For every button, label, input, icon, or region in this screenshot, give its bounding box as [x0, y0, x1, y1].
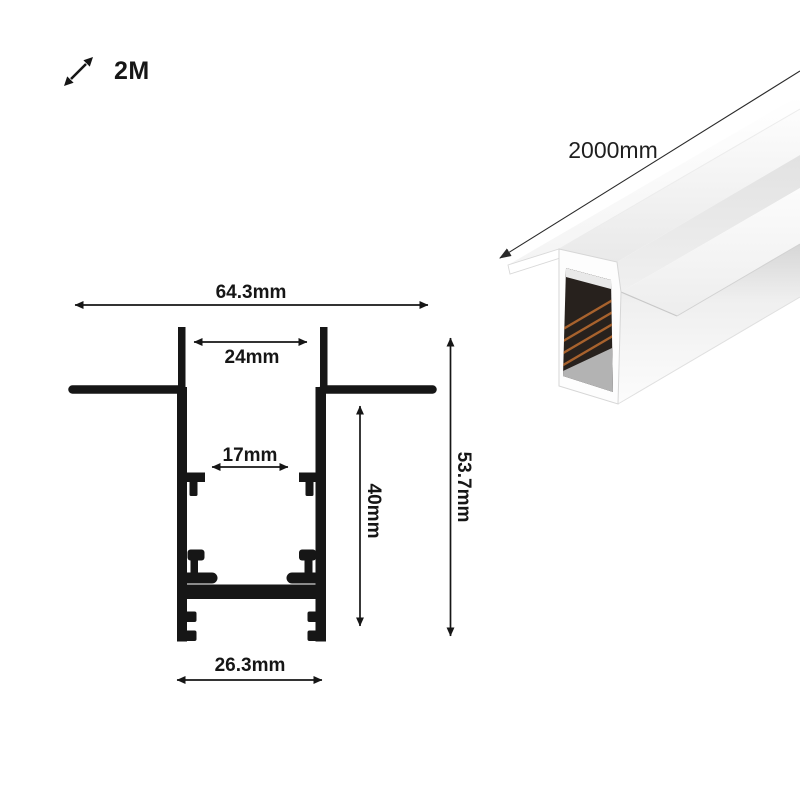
- profile-3d-render: 2000mm: [500, 71, 800, 404]
- dimension-label-length: 2000mm: [568, 137, 657, 163]
- product-dimension-sheet: 2M: [0, 0, 800, 800]
- dimension-label-body-width: 26.3mm: [215, 655, 286, 676]
- dimension-label-inner-slot: 17mm: [223, 445, 278, 466]
- profile-cross-section: 64.3mm 24mm 17mm 26.3mm 53.7mm 40mm: [73, 282, 475, 680]
- dimension-label-body-depth: 40mm: [363, 484, 384, 539]
- dimension-label-overall-height: 53.7mm: [453, 452, 474, 523]
- technical-drawing-scene: 2000mm: [0, 0, 800, 800]
- dimension-label-top-opening: 24mm: [225, 347, 280, 368]
- dimension-label-overall-width: 64.3mm: [216, 282, 287, 303]
